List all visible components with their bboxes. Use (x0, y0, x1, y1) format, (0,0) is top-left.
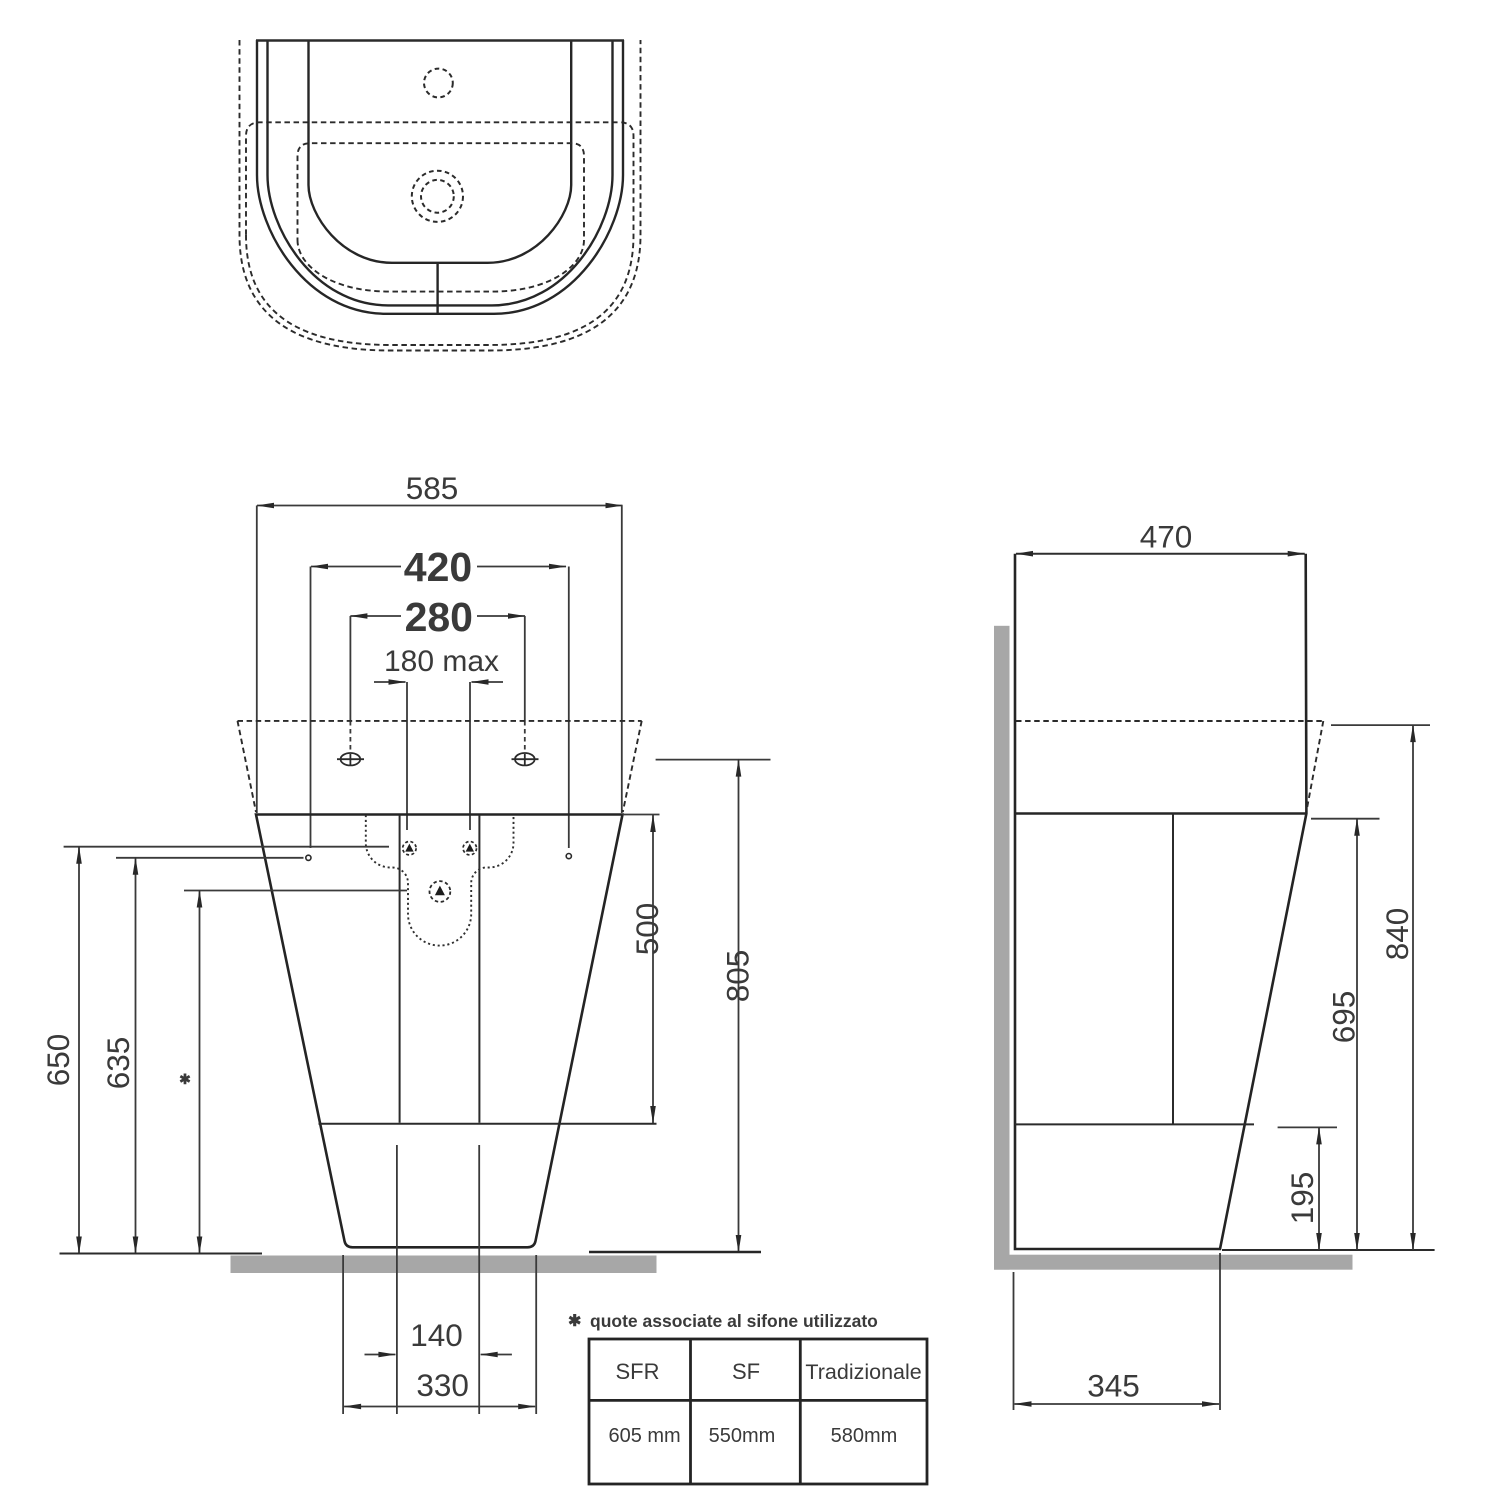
svg-text:SF: SF (732, 1359, 760, 1384)
svg-text:quote associate al sifone util: quote associate al sifone utilizzato (590, 1311, 878, 1331)
svg-text:420: 420 (404, 544, 472, 590)
svg-text:SFR: SFR (616, 1359, 660, 1384)
svg-text:180 max: 180 max (384, 645, 499, 678)
svg-text:✱: ✱ (568, 1313, 581, 1330)
svg-text:✱: ✱ (179, 1071, 191, 1087)
svg-text:140: 140 (410, 1317, 463, 1353)
svg-text:330: 330 (416, 1367, 469, 1403)
svg-text:650: 650 (40, 1034, 76, 1087)
svg-text:580mm: 580mm (831, 1425, 898, 1447)
svg-text:635: 635 (100, 1037, 136, 1090)
svg-text:550mm: 550mm (709, 1425, 776, 1447)
svg-text:805: 805 (720, 950, 756, 1003)
svg-text:585: 585 (406, 470, 459, 506)
svg-text:345: 345 (1087, 1368, 1140, 1404)
svg-text:195: 195 (1284, 1172, 1320, 1225)
svg-text:280: 280 (405, 594, 473, 640)
svg-text:840: 840 (1379, 908, 1415, 961)
svg-text:605 mm: 605 mm (608, 1425, 680, 1447)
svg-text:470: 470 (1140, 519, 1193, 555)
svg-text:Tradizionale: Tradizionale (805, 1360, 921, 1384)
svg-text:500: 500 (629, 903, 665, 956)
svg-text:695: 695 (1326, 991, 1362, 1044)
